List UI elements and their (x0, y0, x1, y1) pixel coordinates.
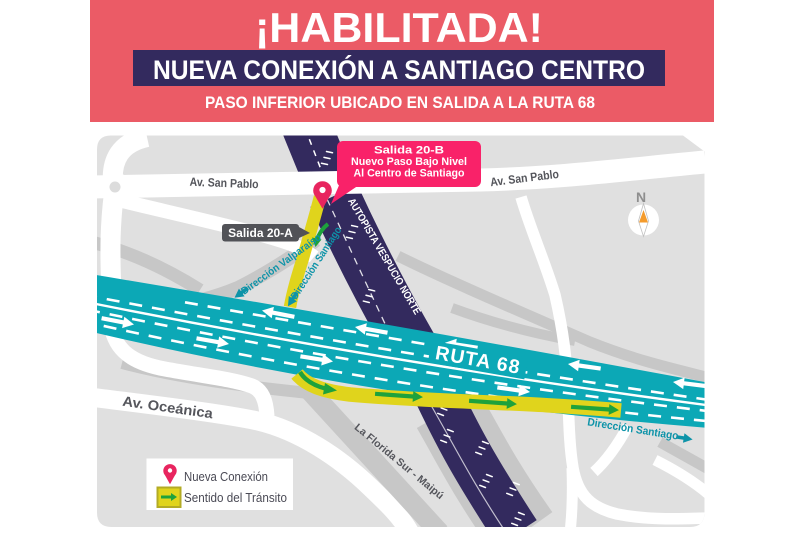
svg-text:PASO INFERIOR UBICADO EN SALID: PASO INFERIOR UBICADO EN SALIDA A LA RUT… (205, 93, 595, 112)
svg-text:Sentido del Tránsito: Sentido del Tránsito (184, 491, 287, 505)
svg-text:Nuevo Paso Bajo Nivel: Nuevo Paso Bajo Nivel (351, 156, 467, 168)
svg-text:Al Centro de Santiago: Al Centro de Santiago (354, 168, 465, 180)
svg-text:Salida 20-A: Salida 20-A (228, 226, 293, 240)
svg-text:N: N (636, 189, 646, 205)
svg-text:¡HABILITADA!: ¡HABILITADA! (255, 4, 543, 51)
svg-text:Salida 20-B: Salida 20-B (374, 145, 444, 157)
svg-text:NUEVA CONEXIÓN A SANTIAGO CENT: NUEVA CONEXIÓN A SANTIAGO CENTRO (153, 54, 645, 85)
svg-text:Nueva Conexión: Nueva Conexión (184, 470, 268, 484)
svg-text:Av. San Pablo: Av. San Pablo (189, 175, 258, 191)
